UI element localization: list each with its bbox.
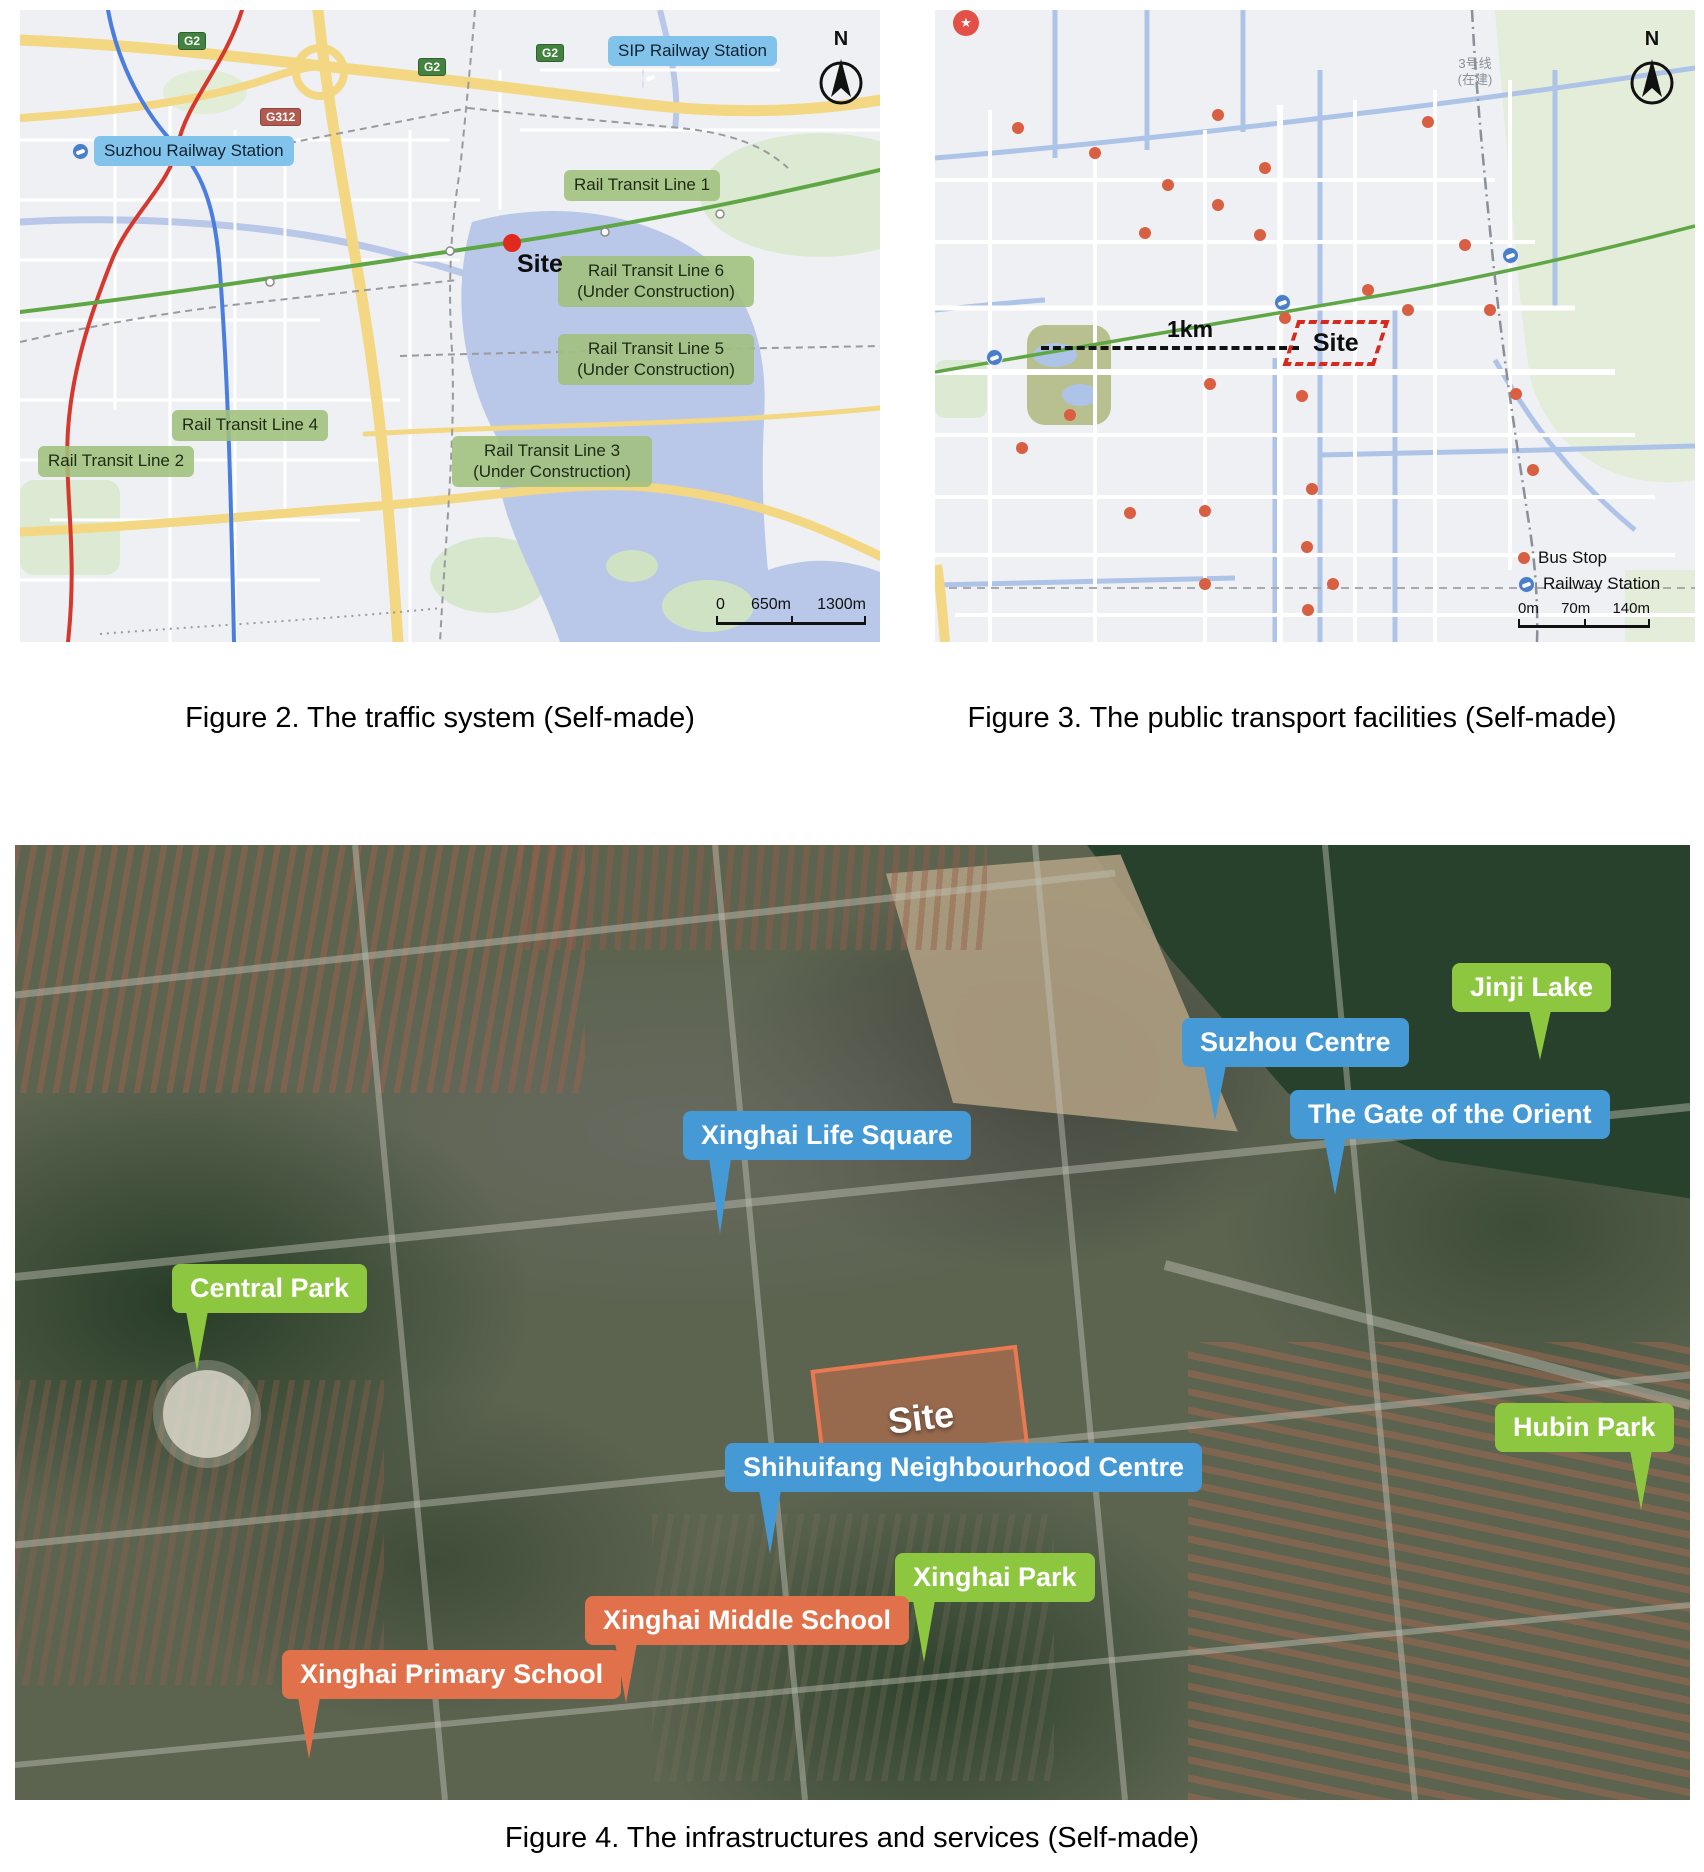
callout-xinghai-primary-school: Xinghai Primary School [282, 1650, 621, 1699]
bus-stop-dot [1296, 390, 1308, 402]
figure2-overlay: G2 G2 G2 G312 SIP Railway Station Suzhou… [20, 10, 880, 642]
bus-stop-dot [1212, 199, 1224, 211]
callout-shihuifang-neighbourhood-centre: Shihuifang Neighbourhood Centre [725, 1443, 1202, 1492]
site-label: Site [886, 1393, 957, 1443]
bus-stop-dot [1327, 578, 1339, 590]
callout-label: Xinghai Primary School [300, 1659, 603, 1689]
satellite-roads-layer [15, 845, 1690, 1800]
figure4-caption: Figure 4. The infrastructures and servic… [0, 1822, 1704, 1855]
bus-stop-dot [1279, 312, 1291, 324]
figure4-satellite-map: Site Jinji Lake Suzhou Centre The Gate o… [15, 845, 1690, 1800]
poi-marker-icon: ★ [953, 10, 979, 36]
document-page: G2 G2 G2 G312 SIP Railway Station Suzhou… [0, 0, 1704, 1872]
bus-stop-dot [1510, 388, 1522, 400]
callout-tail [186, 1311, 208, 1371]
callout-label: Suzhou Centre [1200, 1027, 1391, 1057]
label-rail-transit-line-3: Rail Transit Line 3 (Under Construction) [452, 436, 652, 487]
bus-stop-dot [1199, 578, 1211, 590]
label-suzhou-railway-station: Suzhou Railway Station [94, 136, 294, 166]
label-rail-transit-line-5: Rail Transit Line 5 (Under Construction) [558, 334, 754, 385]
callout-tail [1529, 1010, 1551, 1060]
callout-label: Central Park [190, 1273, 349, 1303]
figure2-traffic-map: G2 G2 G2 G312 SIP Railway Station Suzhou… [20, 10, 880, 642]
bus-stop-dot [1484, 304, 1496, 316]
label-suzhou-railway-station-group: Suzhou Railway Station [72, 136, 294, 166]
figure2-caption: Figure 2. The traffic system (Self-made) [20, 702, 860, 735]
callout-tail [1204, 1065, 1226, 1121]
label-rail-transit-line-6: Rail Transit Line 6 (Under Construction) [558, 256, 754, 307]
figure3-caption: Figure 3. The public transport facilitie… [880, 702, 1704, 735]
callout-tail [1630, 1450, 1652, 1510]
road-badge-g2: G2 [536, 44, 564, 62]
railway-station-icon [642, 69, 644, 88]
scale-label: 650m [751, 596, 791, 614]
bus-stop-dot [1402, 304, 1414, 316]
bus-stop-dot [1012, 122, 1024, 134]
callout-xinghai-park: Xinghai Park [895, 1553, 1095, 1602]
scale-label: 1300m [817, 596, 866, 614]
bus-stop-dot [1124, 507, 1136, 519]
bus-stop-dot [1254, 229, 1266, 241]
road-badge-g312: G312 [260, 108, 301, 126]
callout-gate-of-the-orient: The Gate of the Orient [1290, 1090, 1610, 1139]
bus-stop-dot [1139, 227, 1151, 239]
callout-label: Hubin Park [1513, 1412, 1656, 1442]
callout-jinji-lake: Jinji Lake [1452, 963, 1611, 1012]
figure3-public-transport-map: ★ 3号线 (在建) 1km Site N Bus Stop [935, 10, 1695, 642]
label-rail-transit-line-4: Rail Transit Line 4 [172, 410, 328, 441]
bus-stop-dot [1527, 464, 1539, 476]
bus-stop-dot [1302, 604, 1314, 616]
scale-label: 0m [1518, 600, 1539, 617]
north-label: N [834, 28, 848, 51]
bus-stop-dot [1362, 284, 1374, 296]
bus-stop-dot [1204, 378, 1216, 390]
legend-railway-station-label: Railway Station [1543, 574, 1660, 594]
bus-stop-dot [1016, 442, 1028, 454]
railway-station-icon [1274, 294, 1291, 311]
compass-icon [813, 53, 869, 109]
bus-stop-dot [1259, 162, 1271, 174]
scale-bar: 0 650m 1300m [716, 596, 866, 625]
legend-railway-station: Railway Station [1518, 574, 1660, 594]
callout-central-park: Central Park [172, 1264, 367, 1313]
railway-station-icon [1518, 576, 1535, 593]
callout-tail [913, 1600, 935, 1662]
site-label: Site [517, 250, 563, 279]
bus-stop-dot [1199, 505, 1211, 517]
figure3-overlay: ★ 3号线 (在建) 1km Site N Bus Stop [935, 10, 1695, 642]
callout-tail [298, 1697, 320, 1759]
bus-stop-dot [1212, 109, 1224, 121]
legend-bus-stop-label: Bus Stop [1538, 548, 1607, 568]
bus-stop-dot [1422, 116, 1434, 128]
distance-dashed-line [1041, 346, 1299, 350]
scale-label: 140m [1612, 600, 1650, 617]
bus-stop-dot [1089, 147, 1101, 159]
label-metro-line-3: 3号线 (在建) [1437, 56, 1513, 89]
scale-label: 0 [716, 596, 725, 614]
callout-label: Jinji Lake [1470, 972, 1593, 1002]
callout-hubin-park: Hubin Park [1495, 1403, 1674, 1452]
bus-stop-dot [1306, 483, 1318, 495]
callout-suzhou-centre: Suzhou Centre [1182, 1018, 1409, 1067]
north-arrow: N [812, 28, 870, 109]
scale-label: 70m [1561, 600, 1590, 617]
site-boundary-box: Site [1283, 320, 1390, 366]
railway-station-icon [1502, 247, 1519, 264]
label-rail-transit-line-1: Rail Transit Line 1 [564, 170, 720, 201]
callout-label: The Gate of the Orient [1308, 1099, 1592, 1129]
bus-stop-dot [1459, 239, 1471, 251]
bus-stop-icon [1518, 552, 1530, 564]
callout-label: Shihuifang Neighbourhood Centre [743, 1452, 1184, 1482]
callout-tail [759, 1490, 781, 1554]
scale-bar-rule [1518, 619, 1650, 628]
callout-tail [709, 1158, 731, 1234]
compass-icon [1624, 53, 1680, 109]
north-arrow: N [1623, 28, 1681, 109]
distance-label: 1km [1167, 316, 1213, 343]
scale-bar: 0m 70m 140m [1518, 600, 1650, 628]
callout-label: Xinghai Park [913, 1562, 1077, 1592]
label-sip-railway-station: SIP Railway Station [608, 36, 777, 66]
callout-label: Xinghai Middle School [603, 1605, 891, 1635]
railway-station-icon [986, 349, 1003, 366]
callout-label: Xinghai Life Square [701, 1120, 953, 1150]
bus-stop-dot [1064, 409, 1076, 421]
legend-bus-stop: Bus Stop [1518, 548, 1660, 568]
railway-station-icon [72, 143, 89, 160]
bus-stop-dot [1301, 541, 1313, 553]
callout-xinghai-life-square: Xinghai Life Square [683, 1111, 971, 1160]
callout-xinghai-middle-school: Xinghai Middle School [585, 1596, 909, 1645]
site-label: Site [1313, 329, 1359, 358]
road-badge-g2: G2 [418, 58, 446, 76]
label-rail-transit-line-2: Rail Transit Line 2 [38, 446, 194, 477]
road-badge-g2: G2 [178, 32, 206, 50]
scale-bar-rule [716, 616, 866, 625]
map-legend: Bus Stop Railway Station 0m 70m 140m [1518, 548, 1660, 628]
callout-tail [1324, 1137, 1346, 1195]
bus-stop-dot [1162, 179, 1174, 191]
north-label: N [1645, 28, 1659, 51]
